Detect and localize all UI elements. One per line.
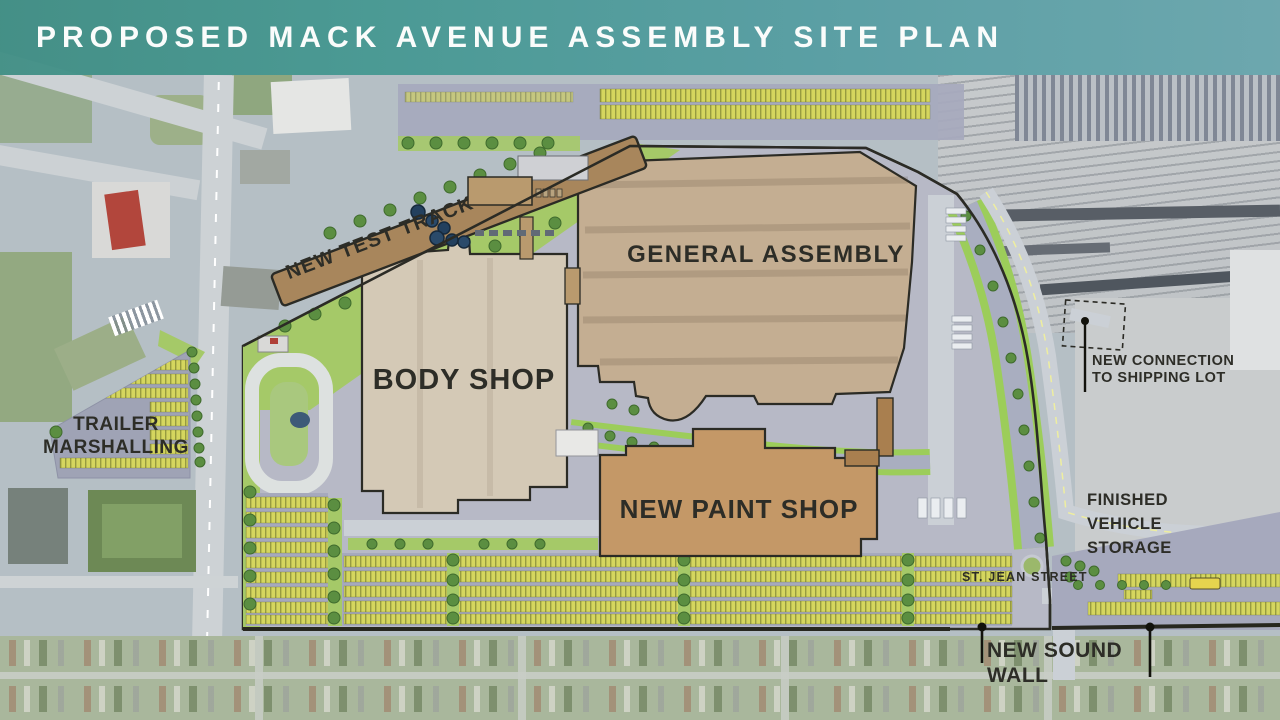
building-paint-shop <box>600 429 877 556</box>
trailer-marshalling-lot <box>50 350 190 478</box>
shipping-connection-dashed-box <box>1062 300 1125 350</box>
building-general-assembly <box>578 152 916 421</box>
page-title: PROPOSED MACK AVENUE ASSEMBLY SITE PLAN <box>36 0 1004 76</box>
site-plan-canvas: NEW TEST TRACK GENERAL ASSEMBLY BODY SHO… <box>0 0 1280 720</box>
title-banner: PROPOSED MACK AVENUE ASSEMBLY SITE PLAN <box>0 0 1280 75</box>
site-plan-overlay <box>0 0 1280 720</box>
north-parking-lot <box>398 84 964 151</box>
building-body-shop <box>362 239 567 513</box>
east-perimeter-belt <box>966 192 1280 548</box>
